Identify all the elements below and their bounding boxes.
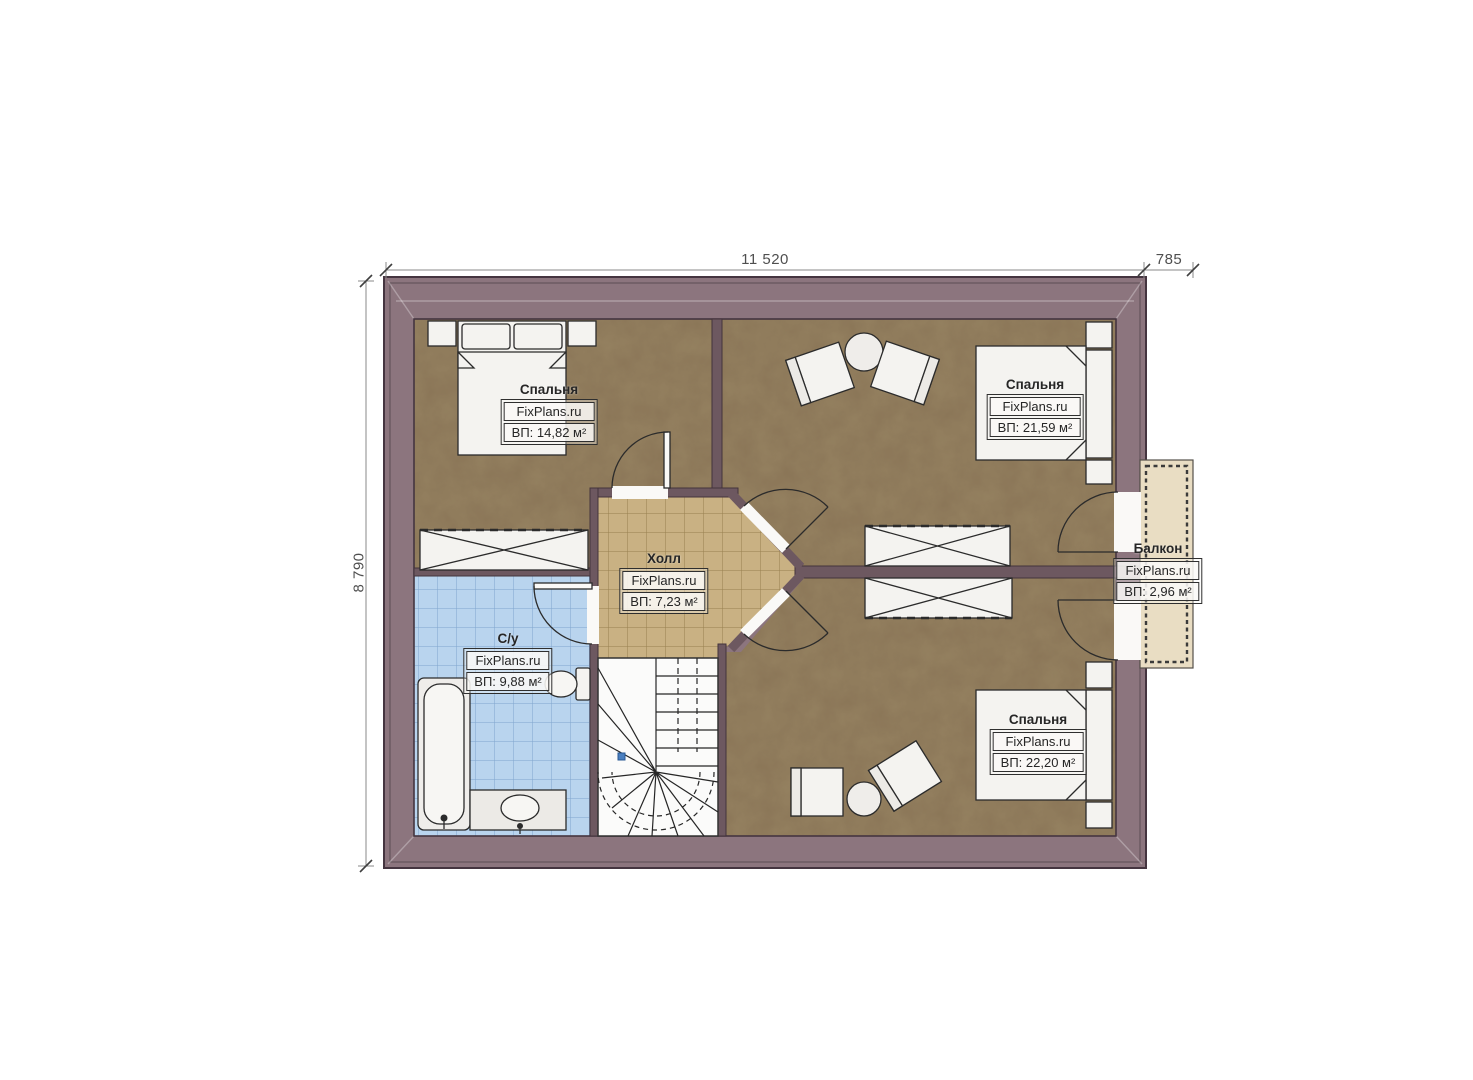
- dimension-top-main: 11 520: [741, 251, 789, 268]
- label-frame: FixPlans.ru ВП: 22,20 м²: [990, 729, 1087, 775]
- room-label-hall: Холл FixPlans.ru ВП: 7,23 м²: [619, 551, 708, 614]
- bathtub: [418, 678, 470, 830]
- vanity-sink: [470, 790, 566, 834]
- room-name: Спальня: [501, 382, 598, 397]
- room-name: Балкон: [1113, 541, 1202, 556]
- floor-plan-canvas: [0, 0, 1473, 1080]
- armchair: [791, 768, 843, 816]
- label-frame: FixPlans.ru ВП: 2,96 м²: [1113, 558, 1202, 604]
- room-label-bedroom-top-right: Спальня FixPlans.ru ВП: 21,59 м²: [987, 377, 1084, 440]
- staircase: [598, 658, 718, 836]
- dimension-left: 8 790: [351, 541, 368, 605]
- dimension-top-balcony: 785: [1156, 251, 1183, 268]
- room-name: Холл: [619, 551, 708, 566]
- label-frame: FixPlans.ru ВП: 14,82 м²: [501, 399, 598, 445]
- wardrobe-top-left: [420, 530, 588, 570]
- watermark-fixplans: FixPlans.ru: [1116, 561, 1199, 580]
- wardrobe-bottom-right: [865, 578, 1012, 618]
- room-label-bathroom: С/у FixPlans.ru ВП: 9,88 м²: [463, 631, 552, 694]
- room-label-bedroom-top-left: Спальня FixPlans.ru ВП: 14,82 м²: [501, 382, 598, 445]
- label-frame: FixPlans.ru ВП: 9,88 м²: [463, 648, 552, 694]
- stair-marker: [618, 753, 625, 760]
- wardrobe-top-right: [865, 526, 1010, 566]
- floor-plan-page: 11 520 785 8 790 Спальня FixPlans.ru ВП:…: [0, 0, 1473, 1080]
- watermark-fixplans: FixPlans.ru: [993, 732, 1084, 751]
- coffee-table: [845, 333, 883, 371]
- label-frame: FixPlans.ru ВП: 7,23 м²: [619, 568, 708, 614]
- area-value: ВП: 7,23 м²: [622, 592, 705, 611]
- coffee-table: [847, 782, 881, 816]
- label-frame: FixPlans.ru ВП: 21,59 м²: [987, 394, 1084, 440]
- area-value: ВП: 9,88 м²: [466, 672, 549, 691]
- watermark-fixplans: FixPlans.ru: [990, 397, 1081, 416]
- area-value: ВП: 14,82 м²: [504, 423, 595, 442]
- area-value: ВП: 22,20 м²: [993, 753, 1084, 772]
- room-name: С/у: [463, 631, 552, 646]
- watermark-fixplans: FixPlans.ru: [622, 571, 705, 590]
- room-name: Спальня: [990, 712, 1087, 727]
- room-label-balcony: Балкон FixPlans.ru ВП: 2,96 м²: [1113, 541, 1202, 604]
- watermark-fixplans: FixPlans.ru: [504, 402, 595, 421]
- area-value: ВП: 21,59 м²: [990, 418, 1081, 437]
- watermark-fixplans: FixPlans.ru: [466, 651, 549, 670]
- room-name: Спальня: [987, 377, 1084, 392]
- room-label-bedroom-bottom-right: Спальня FixPlans.ru ВП: 22,20 м²: [990, 712, 1087, 775]
- area-value: ВП: 2,96 м²: [1116, 582, 1199, 601]
